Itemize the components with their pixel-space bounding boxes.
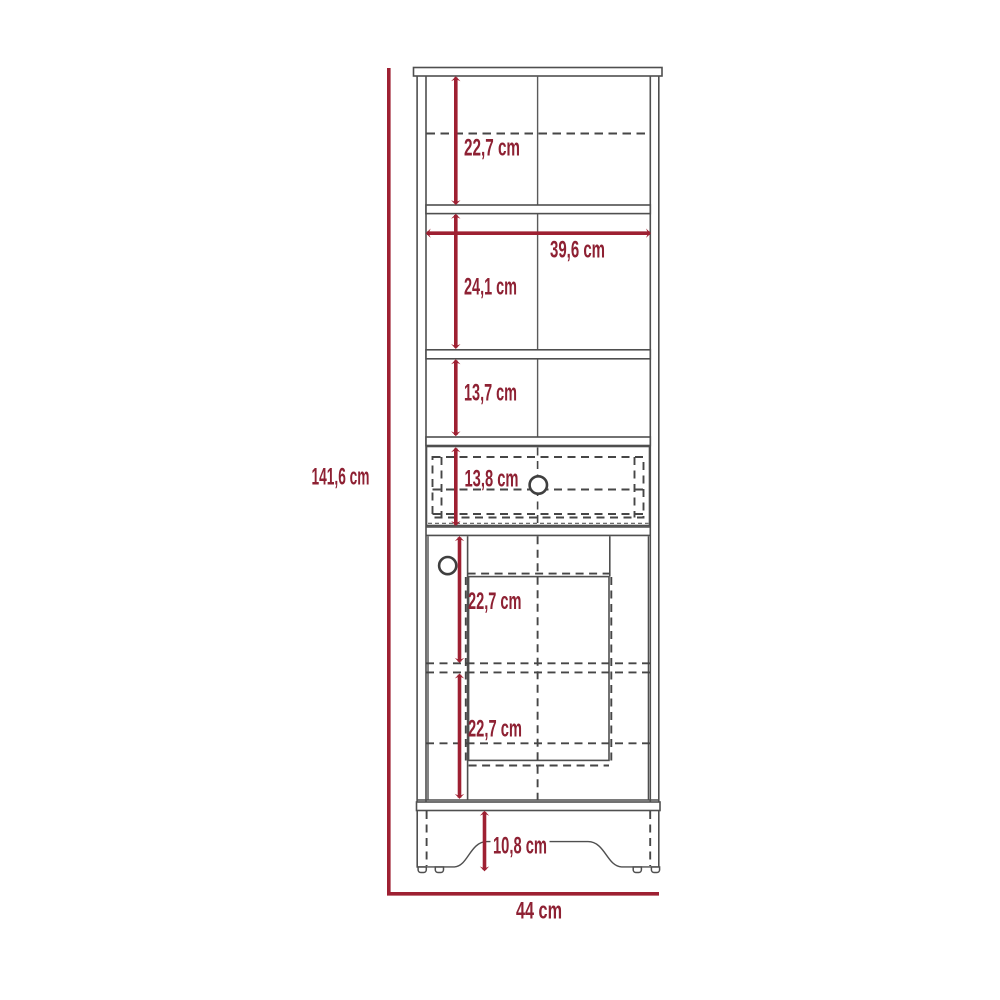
svg-text:10,8 cm: 10,8 cm	[493, 832, 547, 859]
svg-text:22,7 cm: 22,7 cm	[468, 588, 522, 615]
svg-text:39,6 cm: 39,6 cm	[550, 236, 605, 263]
svg-text:141,6 cm: 141,6 cm	[312, 464, 370, 491]
svg-text:22,7 cm: 22,7 cm	[468, 715, 522, 742]
svg-text:22,7 cm: 22,7 cm	[464, 135, 520, 162]
svg-text:44 cm: 44 cm	[516, 897, 562, 924]
svg-text:13,7 cm: 13,7 cm	[464, 379, 517, 406]
svg-text:24,1 cm: 24,1 cm	[464, 273, 517, 300]
svg-text:13,8 cm: 13,8 cm	[465, 465, 519, 492]
